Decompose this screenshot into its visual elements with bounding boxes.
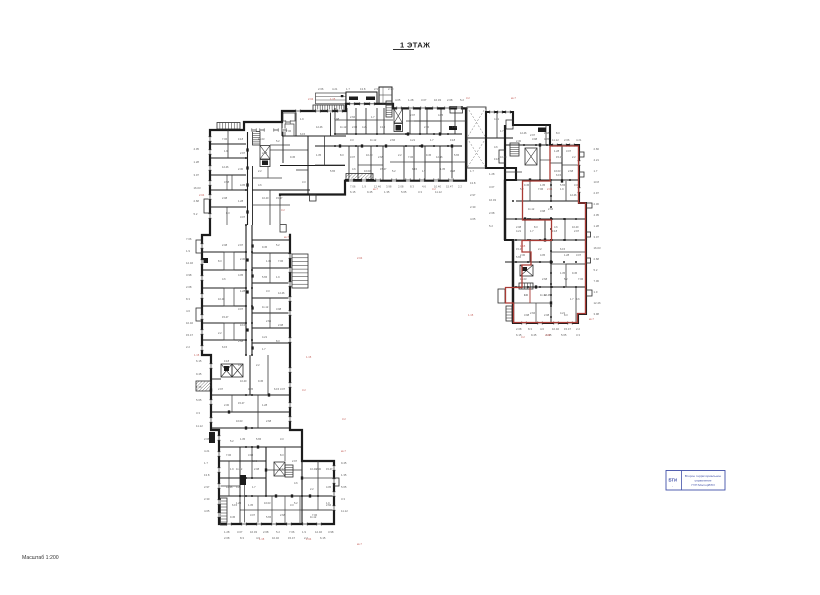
svg-text:2.97: 2.97 <box>594 191 600 195</box>
svg-text:9.45: 9.45 <box>262 245 268 249</box>
svg-text:1.9: 1.9 <box>362 185 366 189</box>
svg-text:6.15: 6.15 <box>556 173 562 177</box>
svg-text:5.2: 5.2 <box>276 530 280 534</box>
svg-text:2.66: 2.66 <box>390 138 396 142</box>
svg-text:4.21: 4.21 <box>362 125 368 129</box>
svg-text:11.12: 11.12 <box>262 305 269 309</box>
svg-text:2.97: 2.97 <box>470 193 476 197</box>
svg-text:2.08: 2.08 <box>278 323 284 327</box>
svg-text:4.21: 4.21 <box>410 138 416 142</box>
svg-text:3.98: 3.98 <box>276 307 282 311</box>
svg-text:3.2: 3.2 <box>466 96 470 100</box>
svg-text:8.3: 8.3 <box>528 327 532 331</box>
svg-text:5.2: 5.2 <box>294 501 298 505</box>
svg-text:3.3: 3.3 <box>302 180 306 184</box>
svg-text:5.2: 5.2 <box>392 169 396 173</box>
svg-text:8.3: 8.3 <box>564 313 568 317</box>
svg-text:1.35: 1.35 <box>248 503 254 507</box>
svg-text:2.68: 2.68 <box>542 277 548 281</box>
svg-text:4.6: 4.6 <box>294 481 298 485</box>
svg-text:1.35: 1.35 <box>440 167 446 171</box>
svg-text:1.15: 1.15 <box>330 97 336 101</box>
svg-text:2.04: 2.04 <box>545 333 551 337</box>
svg-text:2.2: 2.2 <box>538 247 542 251</box>
svg-text:1.35: 1.35 <box>560 271 566 275</box>
svg-text:2.68: 2.68 <box>266 419 272 423</box>
svg-text:5.2: 5.2 <box>276 243 280 247</box>
svg-text:2.30: 2.30 <box>224 403 230 407</box>
svg-text:2.66: 2.66 <box>594 147 600 151</box>
svg-text:11.12: 11.12 <box>435 190 442 194</box>
svg-text:3.2: 3.2 <box>342 417 346 421</box>
svg-text:4.05: 4.05 <box>240 183 246 187</box>
svg-text:2.08: 2.08 <box>516 225 522 229</box>
svg-text:2.08: 2.08 <box>516 327 522 331</box>
svg-text:2.30: 2.30 <box>520 253 526 257</box>
svg-text:9.45: 9.45 <box>341 461 347 465</box>
svg-text:8.3: 8.3 <box>556 131 560 135</box>
svg-text:4.6: 4.6 <box>238 363 242 367</box>
svg-text:9.45: 9.45 <box>367 190 373 194</box>
svg-text:1.28: 1.28 <box>224 530 230 534</box>
svg-text:3.3: 3.3 <box>574 183 578 187</box>
svg-text:1.9: 1.9 <box>230 467 234 471</box>
svg-text:1.28: 1.28 <box>236 501 242 505</box>
svg-text:1.7: 1.7 <box>204 461 208 465</box>
svg-text:7.06: 7.06 <box>186 237 192 241</box>
svg-text:1.9: 1.9 <box>302 530 306 534</box>
svg-text:7.06: 7.06 <box>289 530 295 534</box>
svg-text:1.9: 1.9 <box>186 249 190 253</box>
svg-text:3.07: 3.07 <box>566 149 572 153</box>
svg-text:кв.7: кв.7 <box>589 317 594 321</box>
svg-text:13.8: 13.8 <box>380 125 386 129</box>
svg-text:5.65: 5.65 <box>196 398 202 402</box>
svg-text:2.66: 2.66 <box>266 319 272 323</box>
svg-text:4.21: 4.21 <box>494 117 500 121</box>
svg-text:2.04: 2.04 <box>306 537 312 541</box>
svg-text:1.15: 1.15 <box>194 353 200 357</box>
svg-text:кв.7: кв.7 <box>357 542 362 546</box>
svg-text:4.05: 4.05 <box>594 213 600 217</box>
svg-text:2.66: 2.66 <box>530 311 536 315</box>
svg-text:2.08: 2.08 <box>224 536 230 540</box>
svg-text:6.15: 6.15 <box>300 132 306 136</box>
svg-text:2.97: 2.97 <box>238 243 244 247</box>
svg-text:1.9: 1.9 <box>276 275 280 279</box>
svg-text:3.07: 3.07 <box>350 155 356 159</box>
svg-text:3.2: 3.2 <box>432 187 436 191</box>
svg-text:12.46: 12.46 <box>594 301 601 305</box>
svg-text:4.05: 4.05 <box>540 253 546 257</box>
svg-text:6.15: 6.15 <box>320 536 326 540</box>
svg-text:4.21: 4.21 <box>594 158 600 162</box>
svg-text:11.12: 11.12 <box>370 138 377 142</box>
svg-text:3.98: 3.98 <box>540 209 546 213</box>
svg-text:1.9: 1.9 <box>326 501 330 505</box>
svg-text:1.7: 1.7 <box>500 129 504 133</box>
svg-text:2.66: 2.66 <box>204 437 210 441</box>
svg-text:1.35: 1.35 <box>240 437 246 441</box>
svg-text:3.3: 3.3 <box>418 190 422 194</box>
svg-text:9.45: 9.45 <box>524 183 530 187</box>
svg-text:4.05: 4.05 <box>248 387 254 391</box>
svg-text:1.28: 1.28 <box>238 199 244 203</box>
svg-text:4.21: 4.21 <box>204 449 210 453</box>
svg-text:4.6: 4.6 <box>540 327 544 331</box>
svg-text:7.06: 7.06 <box>312 513 318 517</box>
svg-text:9.45: 9.45 <box>290 155 296 159</box>
svg-text:3.3: 3.3 <box>280 437 284 441</box>
svg-text:2.68: 2.68 <box>280 513 286 517</box>
svg-text:1.28: 1.28 <box>408 98 414 102</box>
svg-text:7.06: 7.06 <box>594 279 600 283</box>
svg-text:6.15: 6.15 <box>196 359 202 363</box>
svg-text:4.21: 4.21 <box>332 87 338 91</box>
svg-text:2.08: 2.08 <box>222 243 228 247</box>
svg-text:13.8: 13.8 <box>450 138 456 142</box>
svg-text:4.05: 4.05 <box>238 273 244 277</box>
svg-text:2.2: 2.2 <box>186 345 190 349</box>
svg-text:16.03: 16.03 <box>554 169 561 173</box>
svg-text:5.2: 5.2 <box>564 277 568 281</box>
svg-text:2.66: 2.66 <box>564 138 570 142</box>
svg-text:1.15: 1.15 <box>259 537 265 541</box>
svg-text:1.7: 1.7 <box>252 485 256 489</box>
svg-text:11.12: 11.12 <box>236 467 243 471</box>
svg-text:13.8: 13.8 <box>280 467 286 471</box>
svg-text:1.7: 1.7 <box>530 229 534 233</box>
svg-text:15.47: 15.47 <box>380 167 387 171</box>
svg-text:4.6: 4.6 <box>422 185 426 189</box>
svg-text:2.97: 2.97 <box>530 133 536 137</box>
svg-text:4.21: 4.21 <box>576 138 582 142</box>
svg-text:4.21: 4.21 <box>262 335 268 339</box>
svg-text:1.7: 1.7 <box>262 347 266 351</box>
svg-text:4.05: 4.05 <box>470 217 476 221</box>
svg-text:15.47: 15.47 <box>238 401 245 405</box>
svg-text:4.05: 4.05 <box>326 485 332 489</box>
svg-text:2.30: 2.30 <box>204 497 210 501</box>
svg-text:ГУП МосгорБТИ: ГУП МосгорБТИ <box>691 483 714 487</box>
svg-text:9.45: 9.45 <box>531 333 537 337</box>
svg-text:2.2: 2.2 <box>458 185 462 189</box>
svg-text:3.3: 3.3 <box>350 138 354 142</box>
svg-text:5.2: 5.2 <box>460 98 464 102</box>
svg-text:4.05: 4.05 <box>544 137 550 141</box>
svg-text:8.3: 8.3 <box>410 185 414 189</box>
svg-text:13.8: 13.8 <box>494 157 500 161</box>
svg-text:6.15: 6.15 <box>350 190 356 194</box>
svg-text:7.06: 7.06 <box>278 259 284 263</box>
svg-text:1.35: 1.35 <box>316 153 322 157</box>
svg-text:3.07: 3.07 <box>280 387 286 391</box>
svg-text:3.2: 3.2 <box>521 335 525 339</box>
svg-text:3.3: 3.3 <box>341 497 345 501</box>
svg-text:3.07: 3.07 <box>576 253 582 257</box>
svg-text:2.30: 2.30 <box>240 257 246 261</box>
svg-text:16.03: 16.03 <box>264 501 271 505</box>
svg-text:1.9: 1.9 <box>524 293 528 297</box>
svg-text:1.7: 1.7 <box>371 115 375 119</box>
svg-text:7.06: 7.06 <box>286 129 292 133</box>
svg-text:2.97: 2.97 <box>292 459 298 463</box>
svg-text:4.6: 4.6 <box>576 297 580 301</box>
svg-text:3.2: 3.2 <box>302 388 306 392</box>
svg-text:1.28: 1.28 <box>452 125 458 129</box>
svg-text:12.46: 12.46 <box>222 165 229 169</box>
svg-text:2.2: 2.2 <box>310 487 314 491</box>
svg-text:3.07: 3.07 <box>250 513 256 517</box>
svg-text:кв.7: кв.7 <box>511 96 516 100</box>
svg-text:2.68: 2.68 <box>447 98 453 102</box>
svg-text:1.28: 1.28 <box>194 160 200 164</box>
svg-text:4.6: 4.6 <box>494 145 498 149</box>
svg-text:1.28: 1.28 <box>489 172 495 176</box>
svg-text:11.12: 11.12 <box>528 207 535 211</box>
svg-text:2.97: 2.97 <box>218 387 224 391</box>
svg-text:2.08: 2.08 <box>254 467 260 471</box>
svg-text:2.68: 2.68 <box>263 530 269 534</box>
svg-text:2.08: 2.08 <box>186 285 192 289</box>
svg-text:10.40: 10.40 <box>572 225 579 229</box>
svg-text:10.40: 10.40 <box>552 327 559 331</box>
svg-text:12.46: 12.46 <box>436 155 443 159</box>
svg-text:5.2: 5.2 <box>276 139 280 143</box>
svg-text:3.07: 3.07 <box>489 185 495 189</box>
svg-text:2.04: 2.04 <box>547 187 553 191</box>
svg-text:4.05: 4.05 <box>204 509 210 513</box>
svg-text:2.08: 2.08 <box>544 313 550 317</box>
svg-text:12.46: 12.46 <box>316 125 323 129</box>
svg-text:3.3: 3.3 <box>576 333 580 337</box>
svg-text:2.2: 2.2 <box>572 155 576 159</box>
svg-text:16.03: 16.03 <box>364 169 371 173</box>
svg-text:5.65: 5.65 <box>266 515 272 519</box>
svg-text:2.08: 2.08 <box>398 185 404 189</box>
svg-text:8.3: 8.3 <box>218 259 222 263</box>
svg-text:2.68: 2.68 <box>489 211 495 215</box>
svg-text:1.35: 1.35 <box>196 385 202 389</box>
svg-text:2.2: 2.2 <box>576 327 580 331</box>
svg-text:2.30: 2.30 <box>516 139 522 143</box>
svg-text:12.46: 12.46 <box>186 261 193 265</box>
svg-text:1.35: 1.35 <box>266 259 272 263</box>
svg-text:7.06: 7.06 <box>226 453 232 457</box>
svg-text:10.40: 10.40 <box>186 321 193 325</box>
svg-text:5.65: 5.65 <box>560 183 566 187</box>
svg-text:3.07: 3.07 <box>194 173 200 177</box>
svg-text:3.3: 3.3 <box>196 411 200 415</box>
svg-text:15.47: 15.47 <box>222 315 229 319</box>
svg-text:1.9: 1.9 <box>422 169 426 173</box>
svg-text:4.6: 4.6 <box>258 183 262 187</box>
svg-text:12.46: 12.46 <box>570 193 577 197</box>
svg-text:15.47: 15.47 <box>186 333 193 337</box>
svg-text:1.28: 1.28 <box>262 403 268 407</box>
svg-text:1.28: 1.28 <box>594 224 600 228</box>
svg-text:4.05: 4.05 <box>395 98 401 102</box>
svg-text:3.98: 3.98 <box>248 453 254 457</box>
svg-text:13.8: 13.8 <box>204 473 210 477</box>
svg-text:2.68: 2.68 <box>378 155 384 159</box>
svg-text:15.47: 15.47 <box>556 155 563 159</box>
svg-text:3.98: 3.98 <box>334 117 340 121</box>
svg-text:2.66: 2.66 <box>318 87 324 91</box>
svg-text:5.65: 5.65 <box>262 275 268 279</box>
svg-text:4.6: 4.6 <box>222 277 226 281</box>
svg-text:5.65: 5.65 <box>330 169 336 173</box>
svg-text:11.12: 11.12 <box>552 138 559 142</box>
svg-text:15.47: 15.47 <box>446 185 453 189</box>
svg-text:9.45: 9.45 <box>196 372 202 376</box>
svg-text:11.12: 11.12 <box>340 125 347 129</box>
svg-text:5.2: 5.2 <box>194 212 198 216</box>
svg-text:2.30: 2.30 <box>238 167 244 171</box>
svg-text:2.2: 2.2 <box>256 363 260 367</box>
svg-text:12.46: 12.46 <box>544 293 551 297</box>
svg-text:3.2: 3.2 <box>281 208 285 212</box>
svg-text:3.98: 3.98 <box>532 137 538 141</box>
svg-text:1.28: 1.28 <box>554 149 560 153</box>
svg-text:2.97: 2.97 <box>374 87 380 91</box>
svg-text:1.9: 1.9 <box>594 290 598 294</box>
svg-text:16.03: 16.03 <box>434 98 441 102</box>
svg-text:2.68: 2.68 <box>568 169 574 173</box>
svg-text:9.45: 9.45 <box>258 379 264 383</box>
svg-text:7.06: 7.06 <box>578 277 584 281</box>
svg-text:7.06: 7.06 <box>408 155 414 159</box>
svg-text:2.97: 2.97 <box>574 229 580 233</box>
svg-text:13.8: 13.8 <box>360 87 366 91</box>
svg-text:1.9: 1.9 <box>560 187 564 191</box>
svg-text:2.30: 2.30 <box>388 87 394 91</box>
svg-text:15.47: 15.47 <box>564 327 571 331</box>
svg-text:13.8: 13.8 <box>552 229 558 233</box>
svg-text:10.40: 10.40 <box>366 153 373 157</box>
svg-text:10.40: 10.40 <box>262 196 269 200</box>
svg-text:8.3: 8.3 <box>226 211 230 215</box>
svg-text:5.65: 5.65 <box>256 437 262 441</box>
svg-text:Второе территориальное: Второе территориальное <box>685 474 721 478</box>
svg-text:15.47: 15.47 <box>276 196 283 200</box>
svg-text:3.98: 3.98 <box>524 313 530 317</box>
svg-text:управление: управление <box>695 479 712 483</box>
svg-text:4.05: 4.05 <box>438 113 444 117</box>
svg-text:8.3: 8.3 <box>280 453 284 457</box>
svg-text:1.9: 1.9 <box>300 117 304 121</box>
svg-text:1.7: 1.7 <box>470 169 474 173</box>
svg-text:5.65: 5.65 <box>454 153 460 157</box>
svg-text:2.66: 2.66 <box>350 115 356 119</box>
svg-text:БТИ: БТИ <box>669 478 677 483</box>
svg-text:2.08: 2.08 <box>352 125 358 129</box>
svg-text:3.07: 3.07 <box>421 98 427 102</box>
svg-text:6.15: 6.15 <box>222 345 228 349</box>
svg-text:5.2: 5.2 <box>489 224 493 228</box>
svg-text:кв.7: кв.7 <box>373 187 378 191</box>
svg-text:15.47: 15.47 <box>326 467 333 471</box>
svg-text:9.45: 9.45 <box>572 271 578 275</box>
svg-text:3.07: 3.07 <box>594 235 600 239</box>
svg-text:5.65: 5.65 <box>561 333 567 337</box>
svg-text:2.97: 2.97 <box>204 485 210 489</box>
svg-text:16.03: 16.03 <box>258 137 265 141</box>
svg-text:2.68: 2.68 <box>262 151 268 155</box>
svg-text:12.46: 12.46 <box>520 131 527 135</box>
svg-text:4.21: 4.21 <box>236 485 242 489</box>
svg-text:3.98: 3.98 <box>386 185 392 189</box>
svg-text:1.9: 1.9 <box>224 149 228 153</box>
svg-text:7.06: 7.06 <box>350 185 356 189</box>
svg-text:5.2: 5.2 <box>594 268 598 272</box>
svg-text:16.03: 16.03 <box>594 246 601 250</box>
svg-text:2.30: 2.30 <box>594 202 600 206</box>
svg-text:16.03: 16.03 <box>194 186 201 190</box>
svg-text:3.98: 3.98 <box>224 180 230 184</box>
svg-text:3.98: 3.98 <box>328 530 334 534</box>
svg-text:3.07: 3.07 <box>237 530 243 534</box>
svg-text:4.6: 4.6 <box>554 225 558 229</box>
svg-text:3.3: 3.3 <box>266 289 270 293</box>
svg-text:12.46: 12.46 <box>315 530 322 534</box>
svg-text:3.98: 3.98 <box>450 169 456 173</box>
svg-text:кв.7: кв.7 <box>341 449 346 453</box>
svg-text:1.7: 1.7 <box>346 87 350 91</box>
svg-text:1.28: 1.28 <box>564 253 570 257</box>
svg-text:3.98: 3.98 <box>594 312 600 316</box>
svg-text:1.7: 1.7 <box>430 138 434 142</box>
svg-text:2.2: 2.2 <box>258 169 262 173</box>
svg-text:10.40: 10.40 <box>240 379 247 383</box>
svg-text:3.07: 3.07 <box>240 215 246 219</box>
svg-text:6.15: 6.15 <box>560 247 566 251</box>
svg-text:16.03: 16.03 <box>520 277 527 281</box>
svg-text:7.06: 7.06 <box>222 137 228 141</box>
svg-text:16.03: 16.03 <box>240 323 247 327</box>
svg-text:8.3: 8.3 <box>240 536 244 540</box>
svg-text:2.97: 2.97 <box>240 151 246 155</box>
svg-text:2.04: 2.04 <box>199 193 205 197</box>
svg-text:11.12: 11.12 <box>196 424 203 428</box>
svg-text:Масштаб 1:200: Масштаб 1:200 <box>22 555 59 561</box>
svg-text:6.15: 6.15 <box>274 387 280 391</box>
svg-text:16.03: 16.03 <box>489 198 496 202</box>
svg-text:2.2: 2.2 <box>398 153 402 157</box>
svg-text:8.3: 8.3 <box>534 225 538 229</box>
svg-text:1.7: 1.7 <box>594 169 598 173</box>
svg-text:2.30: 2.30 <box>316 467 322 471</box>
svg-text:1.15: 1.15 <box>468 313 474 317</box>
svg-text:2.04: 2.04 <box>357 256 363 260</box>
svg-text:2.30: 2.30 <box>424 125 430 129</box>
svg-text:10.40: 10.40 <box>500 155 507 159</box>
svg-text:10.40: 10.40 <box>218 297 225 301</box>
svg-text:1.7: 1.7 <box>570 297 574 301</box>
svg-text:кв.7: кв.7 <box>284 235 289 239</box>
svg-text:12.46: 12.46 <box>226 485 233 489</box>
svg-text:2.08: 2.08 <box>222 196 228 200</box>
svg-text:4.21: 4.21 <box>516 229 522 233</box>
svg-text:9.45: 9.45 <box>426 153 432 157</box>
svg-text:13.8: 13.8 <box>238 137 244 141</box>
svg-text:8.3: 8.3 <box>340 153 344 157</box>
svg-text:4.6: 4.6 <box>186 309 190 313</box>
svg-text:2.2: 2.2 <box>218 331 222 335</box>
svg-text:6.15: 6.15 <box>412 167 418 171</box>
svg-text:1.35: 1.35 <box>384 190 390 194</box>
svg-text:16.03: 16.03 <box>250 530 257 534</box>
